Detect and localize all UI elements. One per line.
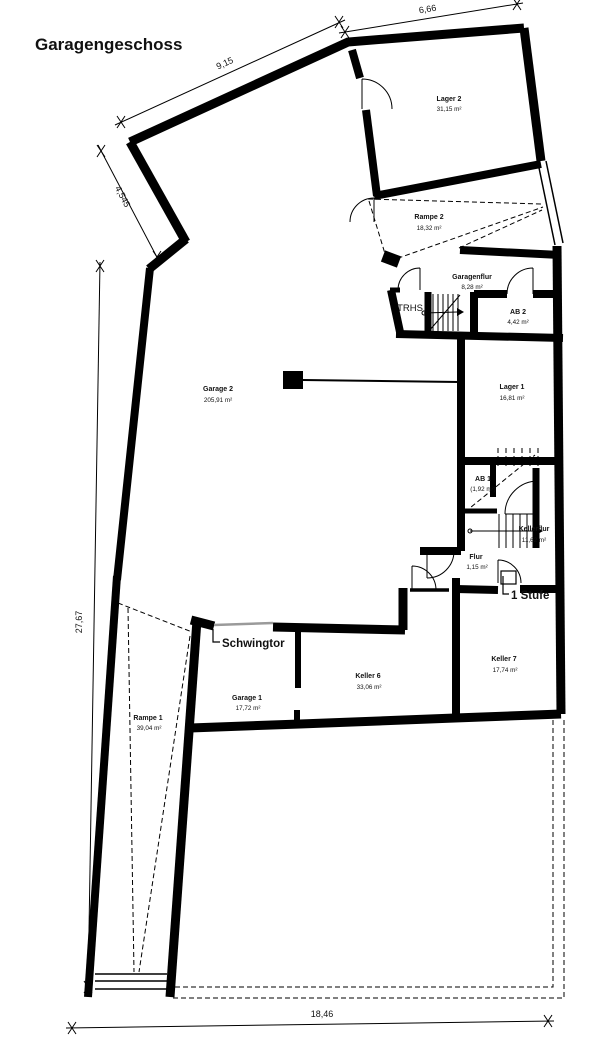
room-label-rampe2: Rampe 2	[414, 214, 443, 221]
room-area-kellerflur: 11,62 m²	[522, 537, 546, 544]
room-area-lager2: 31,15 m²	[437, 106, 462, 113]
dim-18-46: 18,46	[311, 1009, 334, 1019]
dim-9-15: 9,15	[215, 55, 235, 71]
room-area-lager1: 16,81 m²	[500, 395, 525, 402]
room-label-lager1: Lager 1	[500, 384, 525, 391]
room-label-kellerflur: Kellerflur	[519, 526, 550, 533]
room-label-keller7: Keller 7	[491, 656, 516, 663]
schwingtor-label: Schwingtor	[222, 638, 285, 650]
room-label-garage2: Garage 2	[203, 386, 233, 393]
room-label-lager2: Lager 2	[437, 96, 462, 103]
dimension-labels: 9,15 6,66 4,545 27,67 18,46	[74, 3, 437, 1019]
stufe-label: 1 Stufe	[511, 590, 549, 602]
room-area-ab2: 4,42 m²	[507, 319, 528, 326]
floor-plan-svg: 9,15 6,66 4,545 27,67 18,46 Garagengesch…	[0, 0, 600, 1061]
projection-outline	[170, 720, 564, 998]
trhs-label: TRHS	[397, 303, 423, 314]
room-area-ab1: (1,92 m²)	[470, 486, 496, 493]
schwingtor-gate-line	[214, 623, 273, 625]
room-label-keller6: Keller 6	[355, 673, 380, 680]
room-label-ab1: AB 1	[475, 476, 491, 483]
room-label-rampe1: Rampe 1	[133, 715, 162, 722]
room-area-keller6: 33,06 m²	[357, 684, 382, 691]
room-area-garage1: 17,72 m²	[236, 705, 261, 712]
room-label-flur: Flur	[469, 554, 482, 561]
page-title: Garagengeschoss	[35, 35, 182, 54]
room-area-keller7: 17,74 m²	[493, 667, 518, 674]
ramp2-entrance-gate	[538, 161, 563, 245]
room-label-garagenflur: Garagenflur	[452, 274, 492, 281]
annotation-labels: TRHS Schwingtor 1 Stufe	[213, 303, 549, 650]
room-area-garagenflur: 8,28 m²	[461, 284, 482, 291]
floor-plan-page: 9,15 6,66 4,545 27,67 18,46 Garagengesch…	[0, 0, 600, 1061]
dim-27-67: 27,67	[74, 611, 84, 634]
room-area-flur: 1,15 m²	[466, 564, 487, 571]
room-label-garage1: Garage 1	[232, 695, 262, 702]
room-area-rampe1: 39,04 m²	[137, 725, 162, 732]
room-area-garage2: 205,91 m²	[204, 397, 232, 404]
dim-6-66: 6,66	[418, 3, 437, 16]
room-area-rampe2: 18,32 m²	[417, 225, 442, 232]
room-label-ab2: AB 2	[510, 309, 526, 316]
dim-4-545: 4,545	[113, 184, 132, 209]
